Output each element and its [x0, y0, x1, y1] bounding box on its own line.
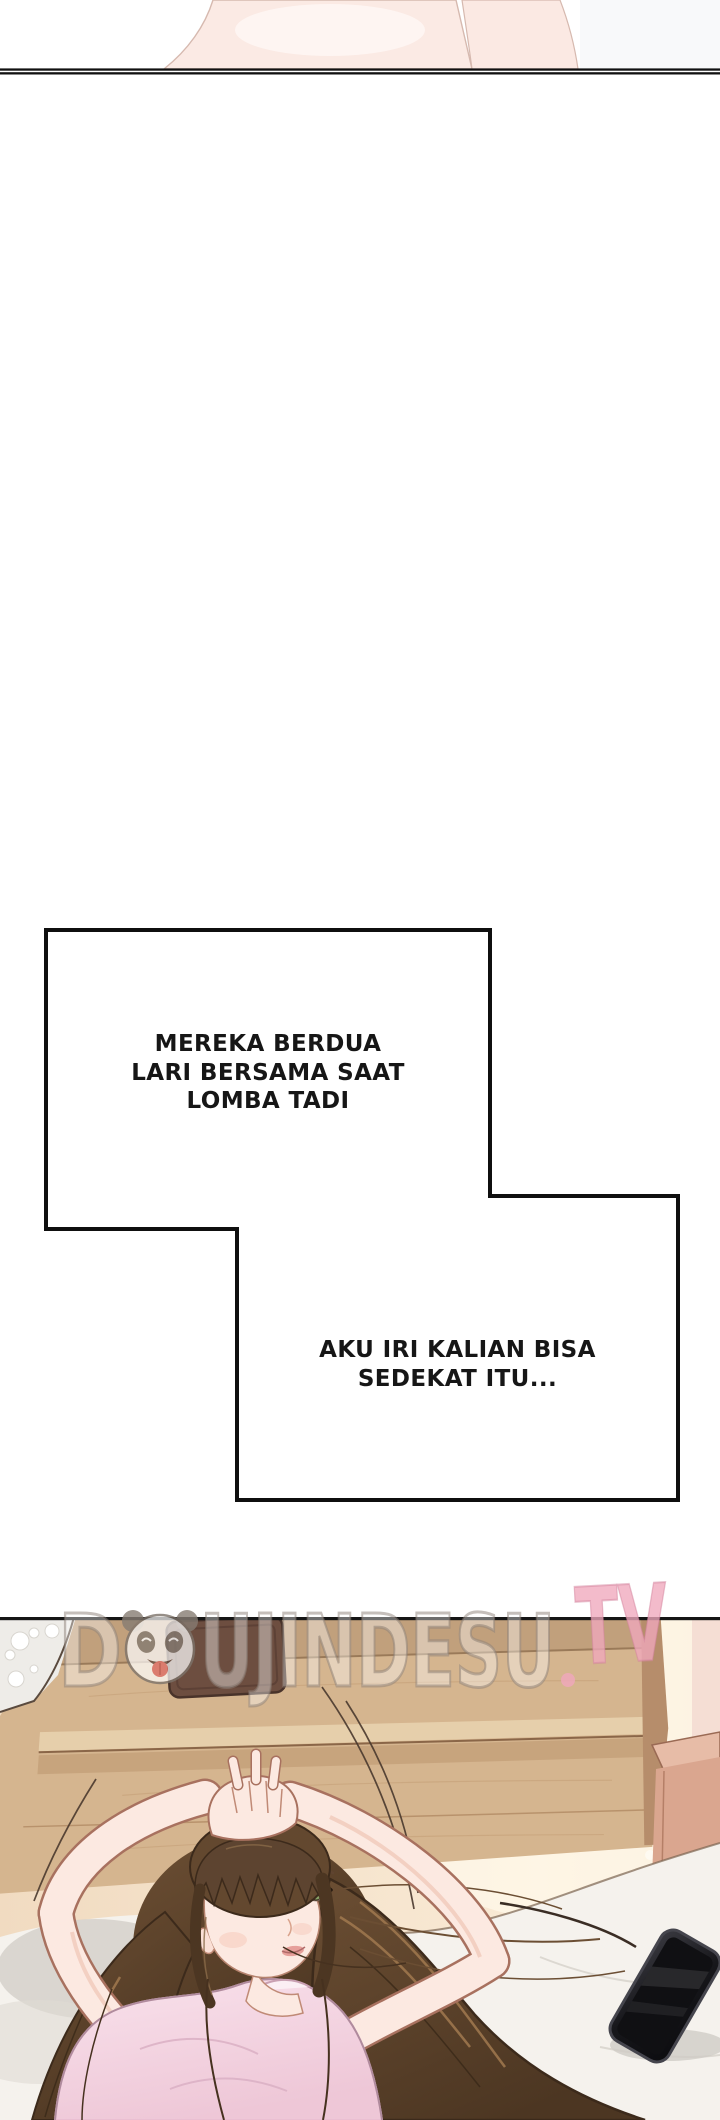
bubble-1-line-3: LOMBA TADI [46, 1087, 490, 1116]
bubble-2-line-1: AKU IRI KALIAN BISA [237, 1336, 678, 1365]
bubble-1-line-2: LARI BERSAMA SAAT [46, 1059, 490, 1088]
panel-border-line [0, 68, 720, 74]
bubble-1-line-1: MEREKA BERDUA [46, 1030, 490, 1059]
speech-bubble-1-text: MEREKA BERDUA LARI BERSAMA SAAT LOMBA TA… [46, 1030, 490, 1116]
bubble-2-line-2: SEDEKAT ITU... [237, 1365, 678, 1394]
speech-bubble-shape [46, 930, 678, 1500]
previous-panel-fragment [0, 0, 720, 76]
speech-bubble-2-text: AKU IRI KALIAN BISA SEDEKAT ITU... [237, 1336, 678, 1393]
cheek-blush [219, 1932, 247, 1948]
speech-bubble-outline [30, 920, 690, 1520]
bedroom-panel [0, 1617, 720, 2120]
bedroom-panel-top-border [0, 1617, 720, 1620]
headboard-frame-object [166, 1617, 286, 1698]
comic-page: MEREKA BERDUA LARI BERSAMA SAAT LOMBA TA… [0, 0, 720, 2120]
prev-panel-right-tint [580, 0, 720, 69]
prev-panel-leg-right [462, 0, 578, 69]
prev-panel-highlight [235, 4, 425, 56]
